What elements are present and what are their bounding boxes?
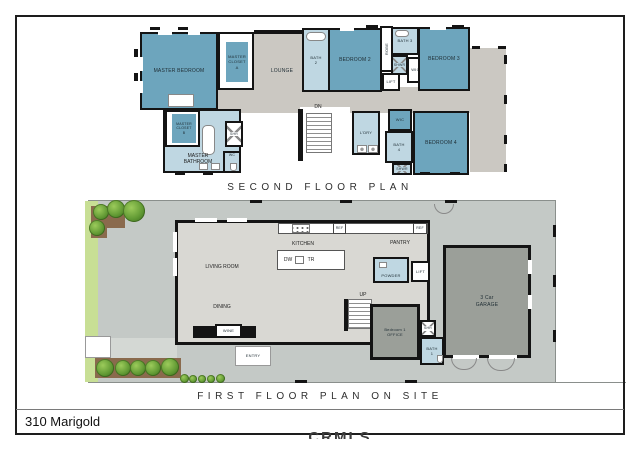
sheet-border: [15, 15, 625, 435]
watermark-fragment: CRMLS: [270, 430, 410, 439]
floor-plan-sheet: MASTER BEDROOM MASTER CLOSET A LOUNGE BA…: [0, 0, 640, 452]
divider-line: [16, 409, 624, 410]
address-label: 310 Marigold: [25, 414, 100, 429]
